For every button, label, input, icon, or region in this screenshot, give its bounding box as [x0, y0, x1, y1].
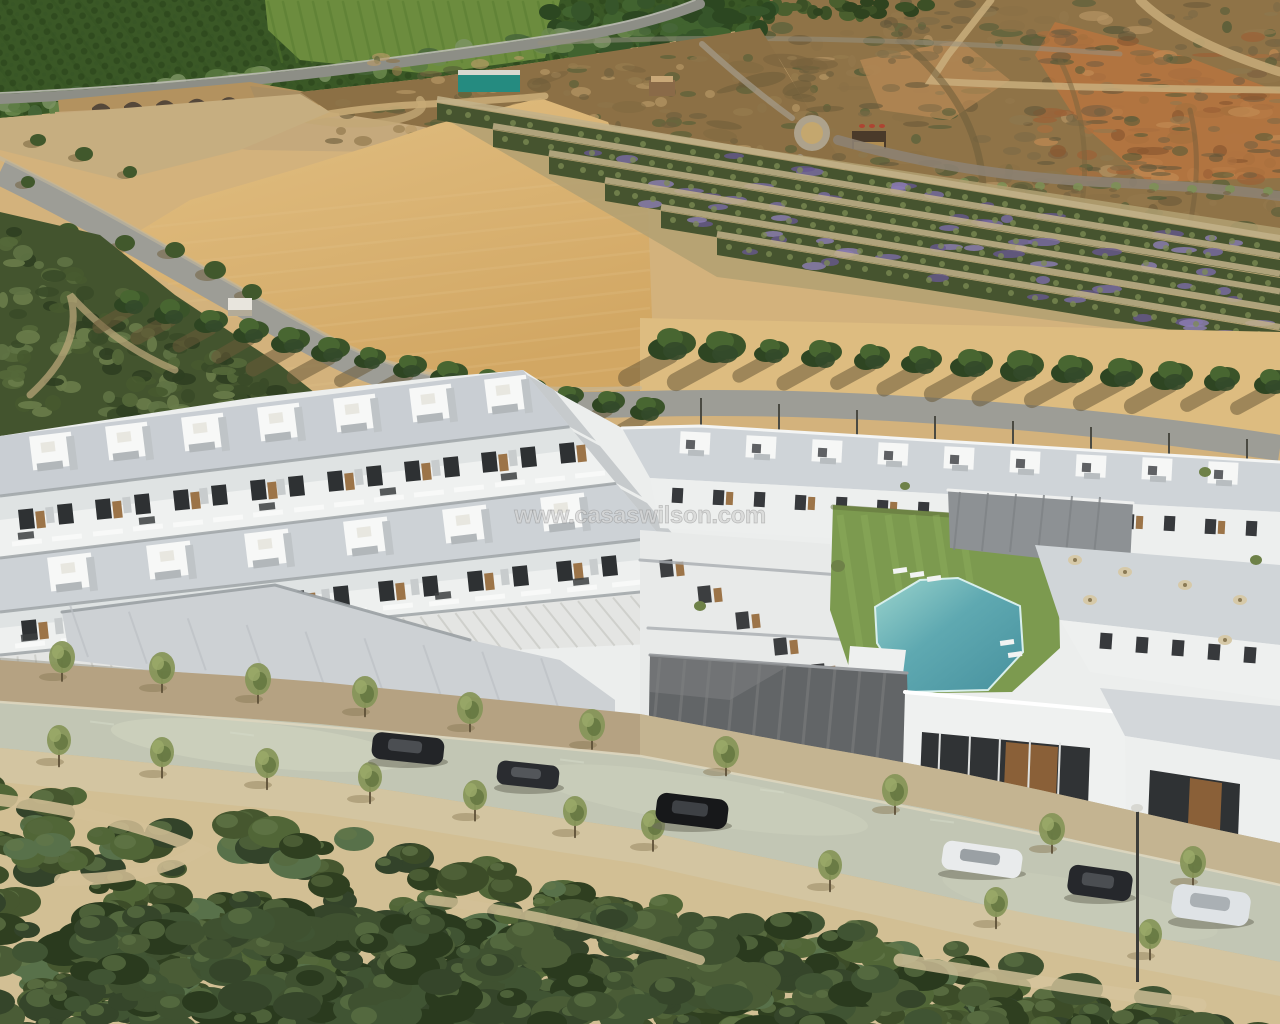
svg-text:www.casaswilson.com: www.casaswilson.com: [513, 502, 766, 529]
